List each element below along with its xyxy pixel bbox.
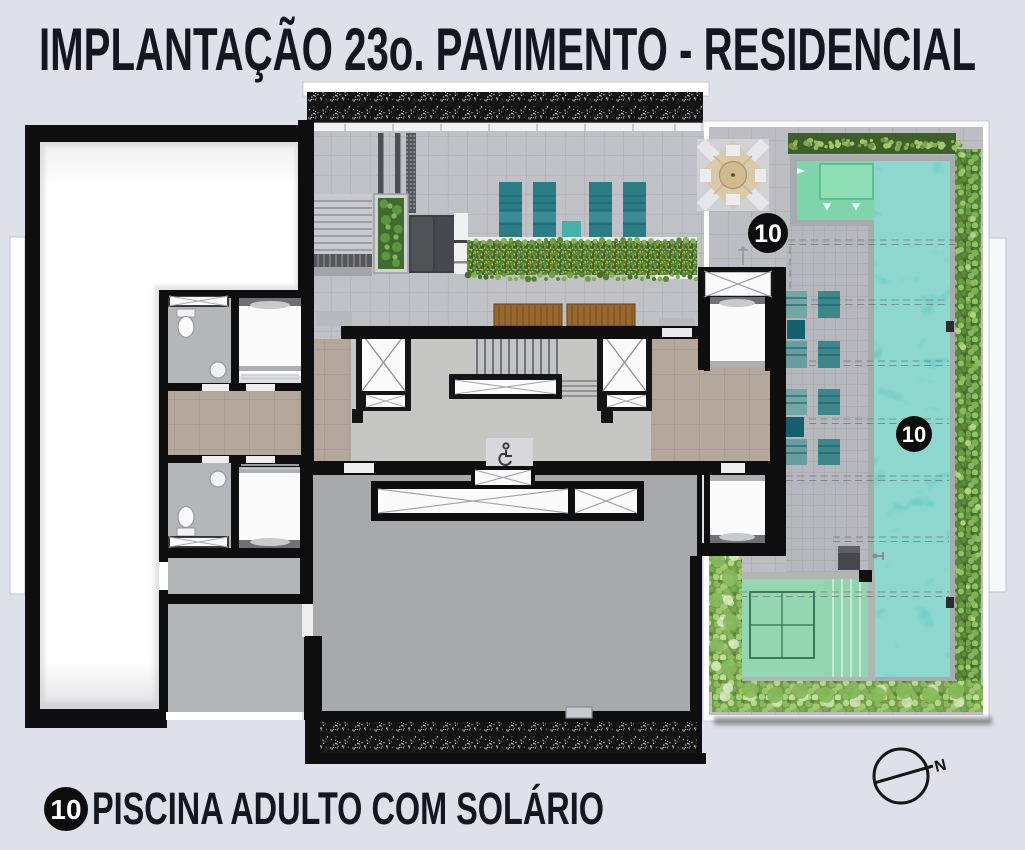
svg-text:IMPLANTAÇÃO 23o. PAVIMENTO - R: IMPLANTAÇÃO 23o. PAVIMENTO - RESIDENCIAL: [39, 16, 976, 83]
svg-text:10: 10: [50, 794, 81, 825]
svg-text:10: 10: [754, 220, 782, 248]
svg-text:PISCINA ADULTO COM SOLÁRIO: PISCINA ADULTO COM SOLÁRIO: [92, 783, 604, 834]
svg-text:10: 10: [902, 422, 926, 447]
